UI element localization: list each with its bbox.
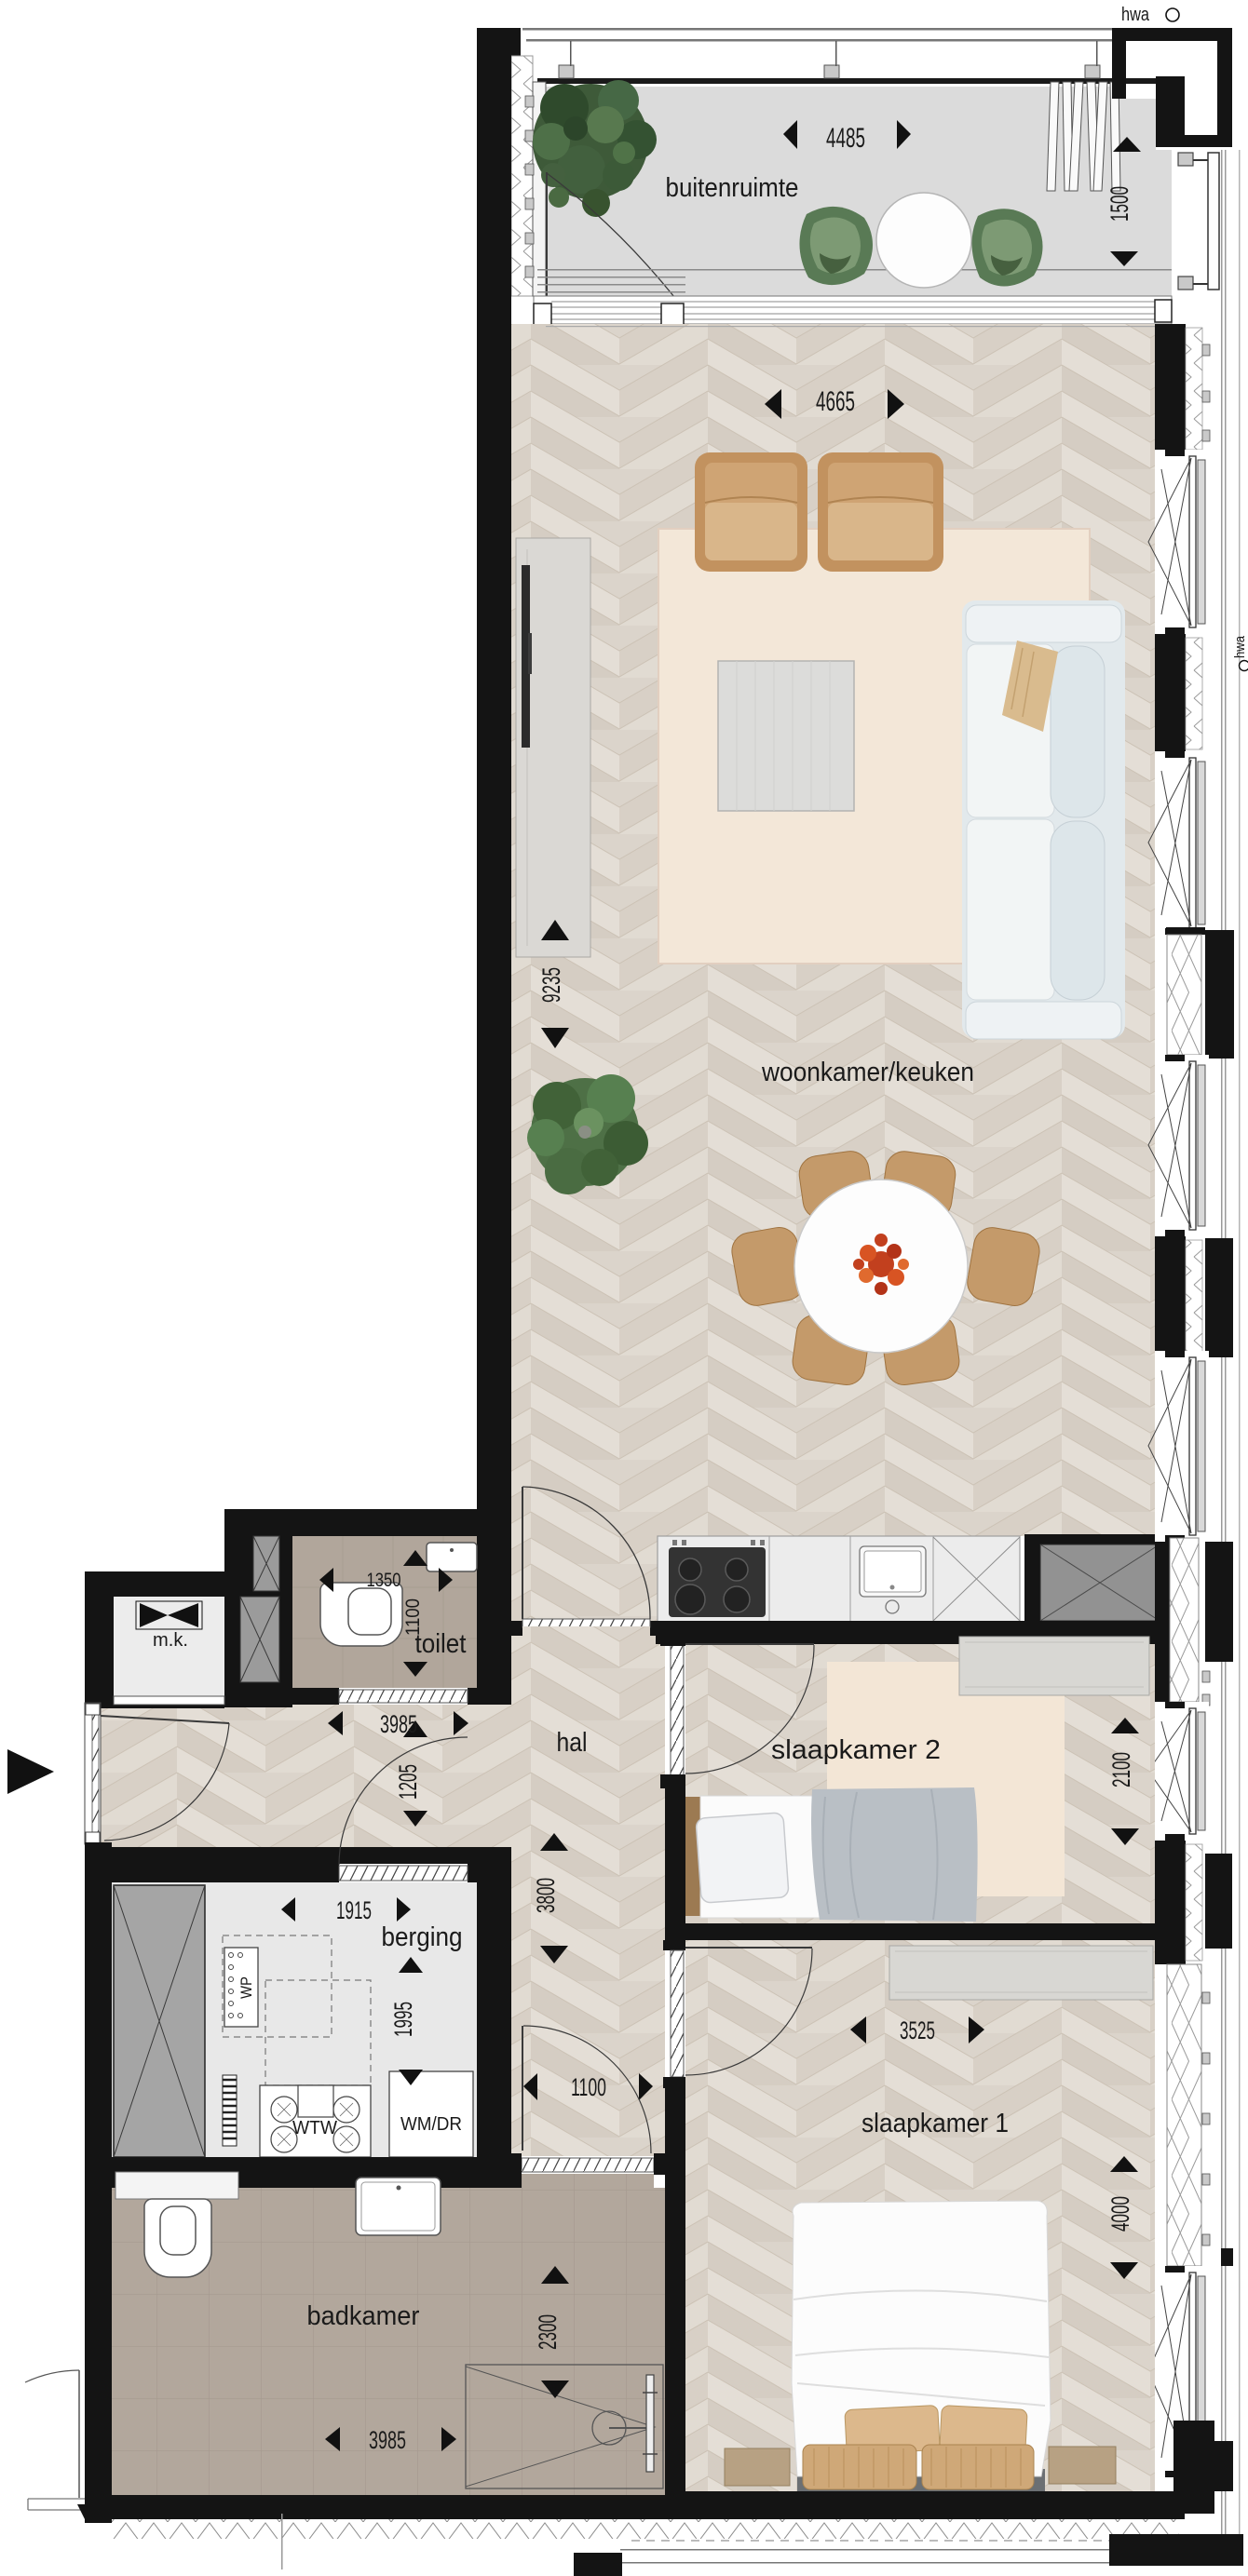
svg-text:buitenruimte: buitenruimte	[666, 173, 799, 203]
svg-text:WTW: WTW	[292, 2118, 337, 2138]
svg-text:1100: 1100	[402, 1598, 424, 1636]
svg-text:3800: 3800	[532, 1878, 560, 1913]
svg-text:badkamer: badkamer	[307, 2301, 420, 2331]
svg-text:9235: 9235	[537, 967, 565, 1003]
svg-text:slaapkamer 1: slaapkamer 1	[861, 2109, 1009, 2138]
svg-text:WM/DR: WM/DR	[400, 2114, 462, 2135]
svg-text:woonkamer/keuken: woonkamer/keuken	[761, 1058, 974, 1087]
svg-text:1995: 1995	[389, 2002, 417, 2037]
svg-text:3985: 3985	[380, 1710, 417, 1738]
svg-text:WP: WP	[237, 1976, 255, 1999]
svg-text:berging: berging	[382, 1922, 463, 1952]
svg-text:1500: 1500	[1106, 186, 1133, 222]
svg-text:3985: 3985	[369, 2426, 406, 2454]
svg-text:2100: 2100	[1107, 1752, 1135, 1787]
svg-text:hwa: hwa	[1232, 635, 1248, 658]
svg-text:slaapkamer 2: slaapkamer 2	[771, 1735, 941, 1765]
svg-text:1915: 1915	[336, 1896, 372, 1924]
svg-text:1100: 1100	[571, 2073, 606, 2101]
svg-text:1350: 1350	[367, 1570, 401, 1591]
svg-text:4665: 4665	[816, 386, 855, 417]
svg-text:4485: 4485	[826, 123, 865, 154]
svg-text:2300: 2300	[534, 2314, 562, 2350]
svg-text:hwa: hwa	[1121, 5, 1150, 25]
svg-text:hal: hal	[557, 1728, 588, 1758]
svg-text:4000: 4000	[1106, 2196, 1134, 2232]
svg-text:1205: 1205	[394, 1764, 422, 1800]
svg-text:3525: 3525	[900, 2016, 935, 2044]
svg-text:m.k.: m.k.	[153, 1630, 188, 1651]
